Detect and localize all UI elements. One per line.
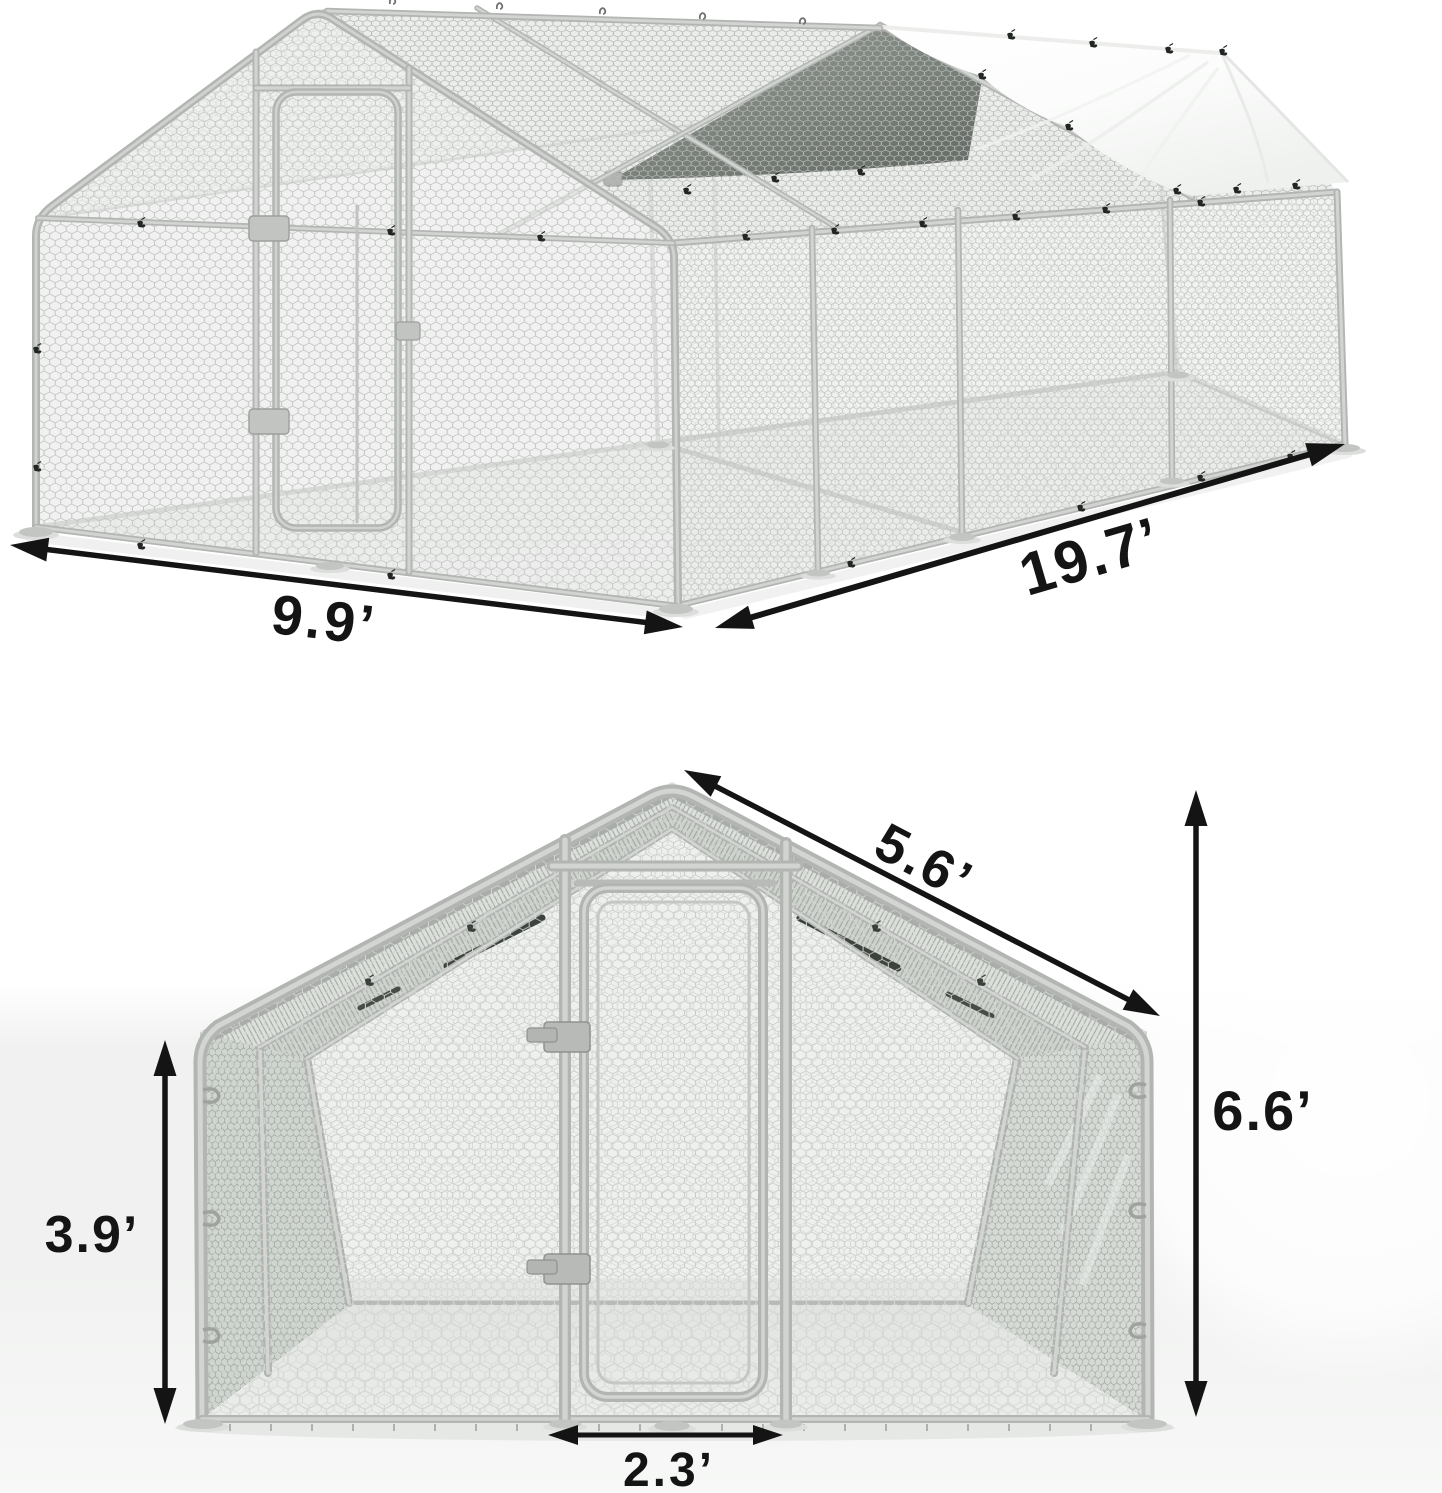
svg-text:3.9’: 3.9’ (45, 1206, 140, 1264)
svg-text:2.3’: 2.3’ (623, 1444, 715, 1493)
svg-text:6.6’: 6.6’ (1212, 1079, 1313, 1142)
svg-text:9.9’: 9.9’ (268, 582, 380, 657)
